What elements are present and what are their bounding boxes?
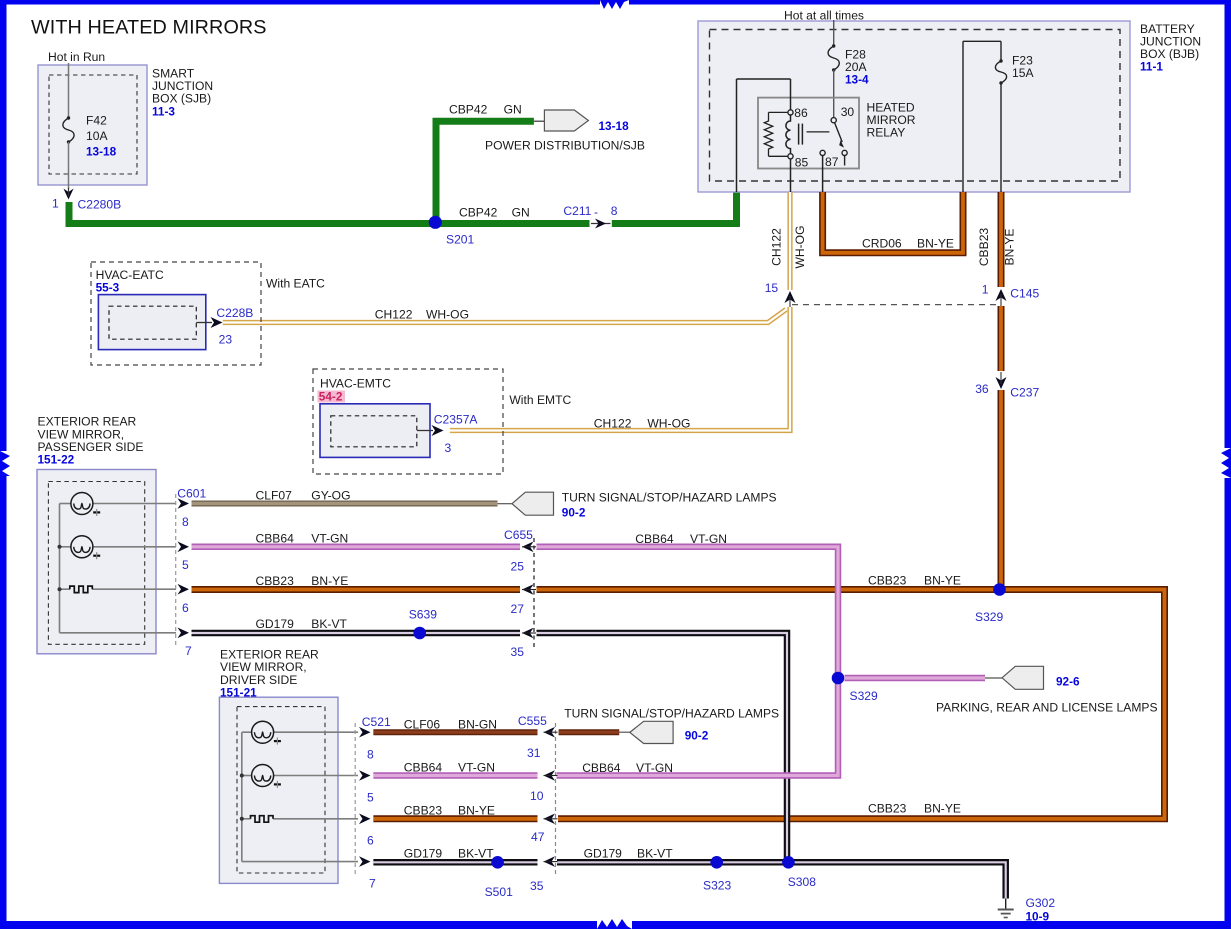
svg-text:HVAC-EMTC: HVAC-EMTC bbox=[320, 377, 391, 391]
svg-text:BN-YE: BN-YE bbox=[458, 804, 495, 818]
svg-text:BN-YE: BN-YE bbox=[924, 802, 961, 816]
svg-text:CBB23: CBB23 bbox=[868, 574, 907, 588]
svg-text:S329: S329 bbox=[850, 689, 879, 703]
svg-text:C555: C555 bbox=[518, 714, 547, 728]
svg-text:10A: 10A bbox=[86, 129, 108, 143]
svg-text:90-2: 90-2 bbox=[562, 506, 586, 520]
svg-text:S329: S329 bbox=[975, 610, 1004, 624]
svg-text:BN-GN: BN-GN bbox=[458, 718, 497, 732]
svg-text:15: 15 bbox=[765, 281, 779, 295]
svg-text:C655: C655 bbox=[504, 528, 533, 542]
svg-text:VT-GN: VT-GN bbox=[690, 532, 727, 546]
svg-text:5: 5 bbox=[182, 558, 189, 572]
svg-text:54-2: 54-2 bbox=[319, 390, 343, 404]
svg-text:1: 1 bbox=[982, 283, 989, 297]
svg-text:GD179: GD179 bbox=[256, 617, 295, 631]
svg-text:30: 30 bbox=[841, 105, 855, 119]
svg-text:VT-GN: VT-GN bbox=[636, 761, 673, 775]
svg-text:35: 35 bbox=[511, 645, 525, 659]
svg-text:CRD06: CRD06 bbox=[862, 237, 902, 251]
svg-text:C211: C211 bbox=[563, 204, 591, 218]
svg-text:CBP42: CBP42 bbox=[449, 103, 488, 117]
svg-text:WH-OG: WH-OG bbox=[647, 417, 690, 431]
svg-text:86: 86 bbox=[794, 106, 808, 120]
svg-text:GD179: GD179 bbox=[584, 847, 623, 861]
svg-text:-: - bbox=[594, 205, 598, 219]
svg-text:87: 87 bbox=[825, 155, 839, 169]
svg-text:S323: S323 bbox=[703, 879, 732, 893]
svg-text:BN-YE: BN-YE bbox=[1003, 229, 1017, 266]
svg-text:WH-OG: WH-OG bbox=[793, 226, 807, 269]
svg-text:10-9: 10-9 bbox=[1026, 910, 1050, 924]
svg-text:13-4: 13-4 bbox=[845, 73, 869, 87]
svg-text:G302: G302 bbox=[1026, 896, 1056, 910]
svg-text:1: 1 bbox=[52, 197, 59, 211]
svg-text:7: 7 bbox=[369, 877, 376, 891]
svg-text:36: 36 bbox=[975, 382, 989, 396]
svg-text:GN: GN bbox=[504, 103, 522, 117]
svg-text:8: 8 bbox=[182, 515, 189, 529]
svg-text:11-1: 11-1 bbox=[1140, 60, 1163, 74]
svg-text:Hot at all times: Hot at all times bbox=[784, 9, 864, 23]
svg-text:6: 6 bbox=[367, 834, 374, 848]
svg-text:31: 31 bbox=[527, 746, 541, 760]
svg-text:S201: S201 bbox=[446, 233, 475, 247]
svg-text:VT-GN: VT-GN bbox=[311, 531, 348, 545]
svg-text:CBB64: CBB64 bbox=[256, 531, 295, 545]
svg-text:With EMTC: With EMTC bbox=[509, 393, 571, 407]
svg-text:WH-OG: WH-OG bbox=[426, 308, 469, 322]
svg-text:F42: F42 bbox=[86, 114, 107, 128]
svg-text:C228B: C228B bbox=[216, 306, 253, 320]
svg-text:BN-YE: BN-YE bbox=[924, 574, 961, 588]
svg-text:10: 10 bbox=[530, 789, 544, 803]
svg-text:151-22: 151-22 bbox=[38, 453, 75, 467]
svg-text:S639: S639 bbox=[409, 608, 438, 622]
svg-text:35: 35 bbox=[530, 879, 544, 893]
svg-text:C2357A: C2357A bbox=[434, 413, 479, 427]
svg-text:PARKING, REAR AND LICENSE LAMP: PARKING, REAR AND LICENSE LAMPS bbox=[936, 701, 1158, 715]
svg-text:3: 3 bbox=[445, 441, 452, 455]
svg-text:13-18: 13-18 bbox=[599, 119, 630, 133]
svg-text:8: 8 bbox=[611, 204, 618, 218]
svg-text:C601: C601 bbox=[177, 487, 206, 501]
svg-text:With EATC: With EATC bbox=[266, 277, 325, 291]
svg-text:TURN SIGNAL/STOP/HAZARD LAMPS: TURN SIGNAL/STOP/HAZARD LAMPS bbox=[562, 491, 777, 505]
svg-text:GN: GN bbox=[512, 206, 530, 220]
svg-text:15A: 15A bbox=[1012, 66, 1034, 80]
svg-text:85: 85 bbox=[795, 156, 809, 170]
svg-text:CLF06: CLF06 bbox=[404, 718, 441, 732]
svg-text:7: 7 bbox=[185, 644, 192, 658]
svg-text:13-18: 13-18 bbox=[86, 145, 117, 159]
svg-text:CBB23: CBB23 bbox=[404, 804, 443, 818]
svg-text:CBP42: CBP42 bbox=[459, 206, 498, 220]
svg-text:47: 47 bbox=[531, 830, 545, 844]
svg-text:27: 27 bbox=[511, 602, 525, 616]
svg-text:BN-YE: BN-YE bbox=[917, 237, 954, 251]
svg-text:S308: S308 bbox=[788, 875, 817, 889]
svg-text:BK-VT: BK-VT bbox=[458, 847, 494, 861]
svg-text:C2280B: C2280B bbox=[78, 198, 122, 212]
svg-text:55-3: 55-3 bbox=[96, 281, 120, 295]
svg-text:6: 6 bbox=[182, 601, 189, 615]
svg-text:GY-OG: GY-OG bbox=[311, 489, 350, 503]
svg-text:CH122: CH122 bbox=[594, 417, 632, 431]
svg-text:BK-VT: BK-VT bbox=[311, 617, 347, 631]
svg-text:23: 23 bbox=[219, 333, 233, 347]
svg-text:CBB23: CBB23 bbox=[977, 228, 991, 267]
svg-text:C521: C521 bbox=[362, 715, 391, 729]
svg-text:POWER DISTRIBUTION/SJB: POWER DISTRIBUTION/SJB bbox=[485, 139, 645, 153]
svg-text:CBB64: CBB64 bbox=[635, 532, 674, 546]
svg-text:CBB23: CBB23 bbox=[256, 574, 295, 588]
svg-text:CBB64: CBB64 bbox=[582, 761, 621, 775]
svg-text:Hot in Run: Hot in Run bbox=[48, 50, 105, 64]
svg-text:5: 5 bbox=[367, 791, 374, 805]
svg-text:CBB23: CBB23 bbox=[868, 802, 907, 816]
svg-text:8: 8 bbox=[367, 747, 374, 761]
svg-text:TURN SIGNAL/STOP/HAZARD LAMPS: TURN SIGNAL/STOP/HAZARD LAMPS bbox=[564, 707, 779, 721]
svg-text:S501: S501 bbox=[485, 885, 514, 899]
svg-text:GD179: GD179 bbox=[404, 847, 443, 861]
svg-text:25: 25 bbox=[511, 560, 525, 574]
svg-text:RELAY: RELAY bbox=[867, 125, 906, 139]
svg-text:90-2: 90-2 bbox=[685, 729, 709, 743]
svg-text:92-6: 92-6 bbox=[1056, 675, 1080, 689]
svg-text:BN-YE: BN-YE bbox=[311, 574, 348, 588]
svg-text:C145: C145 bbox=[1010, 287, 1039, 301]
svg-text:CLF07: CLF07 bbox=[256, 489, 293, 503]
svg-text:11-3: 11-3 bbox=[152, 105, 175, 119]
svg-text:C237: C237 bbox=[1010, 386, 1039, 400]
svg-text:BK-VT: BK-VT bbox=[637, 847, 673, 861]
svg-text:CH122: CH122 bbox=[375, 308, 413, 322]
svg-text:CH122: CH122 bbox=[770, 228, 784, 266]
svg-text:WITH HEATED MIRRORS: WITH HEATED MIRRORS bbox=[31, 17, 267, 39]
